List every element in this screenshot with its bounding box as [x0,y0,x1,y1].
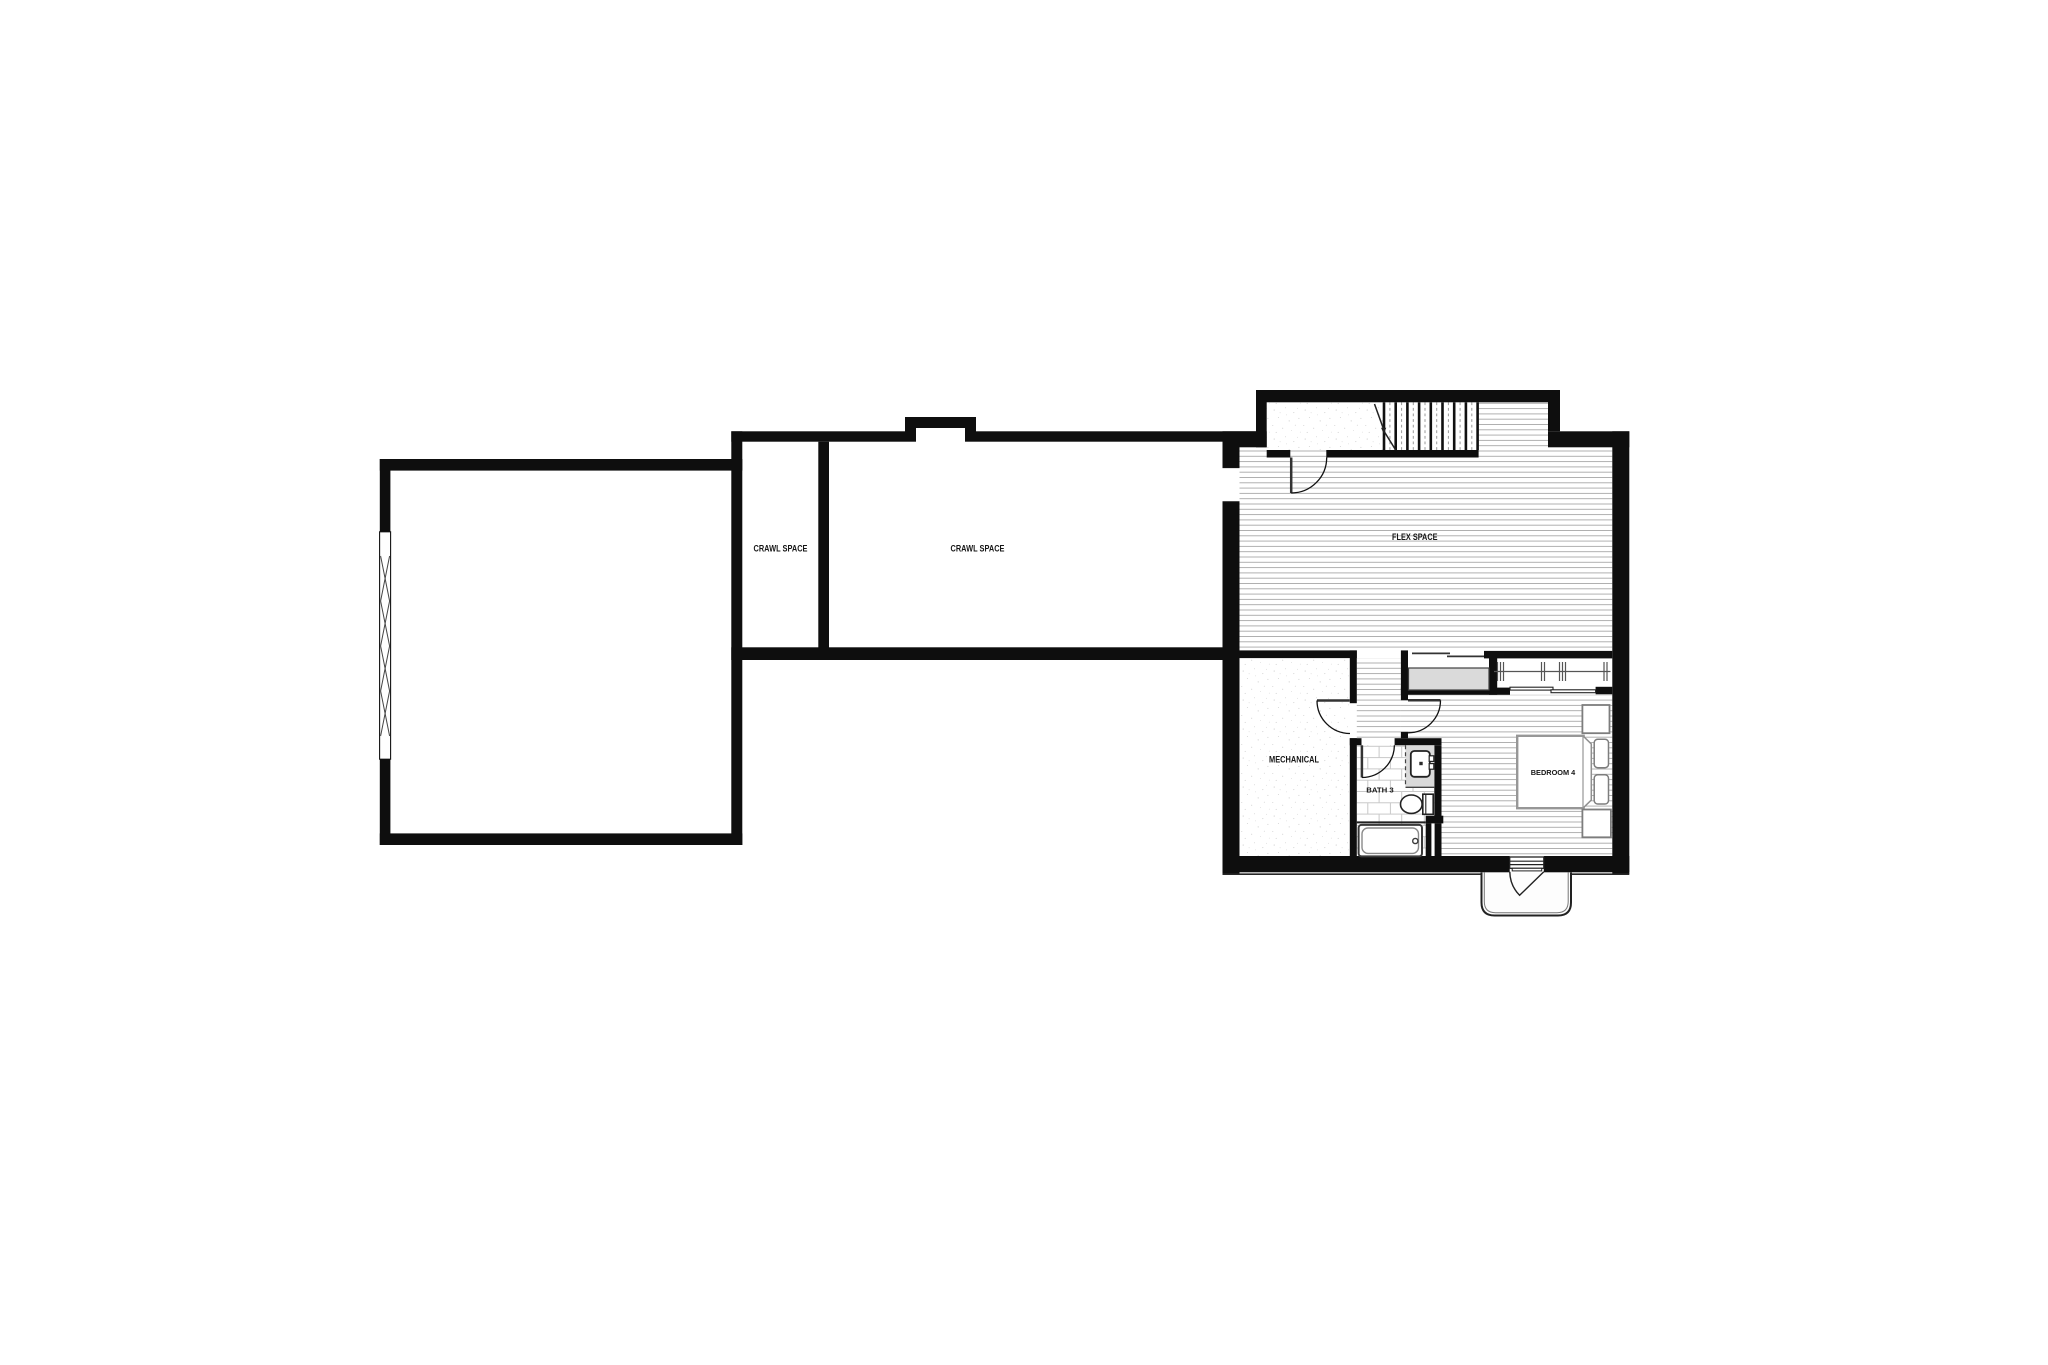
svg-text:CRAWL SPACE: CRAWL SPACE [951,544,1005,555]
svg-text:BATH 3: BATH 3 [1366,788,1394,795]
svg-text:BEDROOM 4: BEDROOM 4 [1531,768,1576,777]
svg-text:MECHANICAL: MECHANICAL [1269,754,1319,765]
svg-text:FLEX SPACE: FLEX SPACE [1392,532,1438,543]
svg-text:CRAWL SPACE: CRAWL SPACE [754,543,808,554]
